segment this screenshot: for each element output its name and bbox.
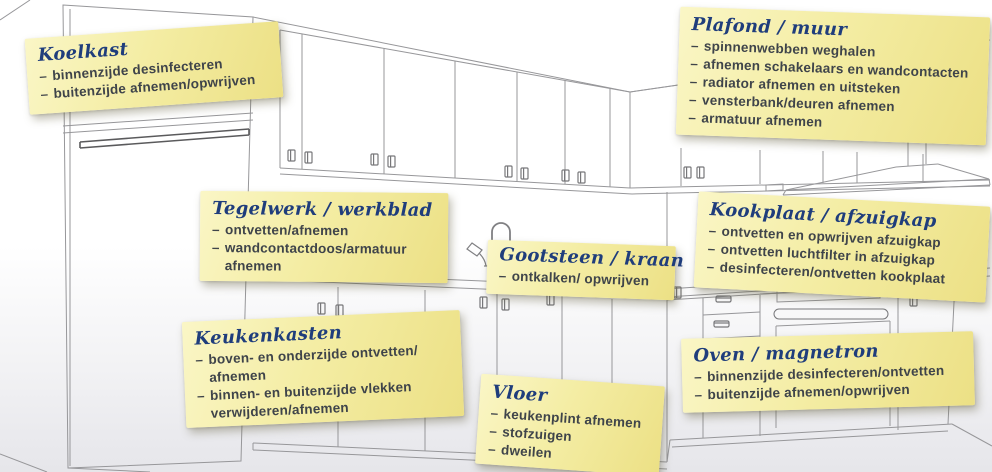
sticky-note-oven-magnetron: Oven / magnetron–binnenzijde desinfecter… bbox=[681, 331, 975, 413]
note-item: –wandcontactdoos/armatuur afnemen bbox=[212, 239, 436, 277]
list-dash: – bbox=[39, 67, 53, 86]
sticky-note-koelkast: Koelkast–binnenzijde desinfecteren–buite… bbox=[25, 21, 284, 115]
list-dash: – bbox=[487, 440, 501, 459]
list-dash: – bbox=[498, 267, 512, 285]
sticky-note-vloer: Vloer–keukenplint afnemen–stofzuigen–dwe… bbox=[475, 374, 665, 472]
list-dash: – bbox=[490, 404, 504, 423]
list-dash: – bbox=[690, 55, 704, 73]
sticky-notes-layer: Koelkast–binnenzijde desinfecteren–buite… bbox=[0, 0, 992, 472]
note-title: Tegelwerk / werkblad bbox=[212, 197, 436, 223]
sticky-note-kookplaat-afzuigkap: Kookplaat / afzuigkap–ontvetten en opwri… bbox=[694, 191, 991, 302]
list-dash: – bbox=[694, 386, 707, 404]
list-dash: – bbox=[707, 240, 721, 259]
sticky-note-keukenkasten: Keukenkasten–boven- en onderzijde ontvet… bbox=[182, 310, 464, 428]
list-dash: – bbox=[694, 368, 707, 386]
list-dash: – bbox=[212, 221, 225, 239]
sticky-note-plafond-muur: Plafond / muur–spinnenwebben weghalen–af… bbox=[676, 7, 990, 146]
list-dash: – bbox=[212, 239, 225, 257]
list-dash: – bbox=[489, 422, 503, 441]
list-dash: – bbox=[706, 258, 720, 277]
sticky-note-tegelwerk-werkblad: Tegelwerk / werkblad–ontvetten/afnemen–w… bbox=[200, 191, 449, 283]
list-dash: – bbox=[688, 109, 702, 127]
note-item: –ontvetten/afnemen bbox=[212, 221, 436, 241]
list-dash: – bbox=[195, 351, 209, 370]
list-dash: – bbox=[40, 85, 54, 104]
list-dash: – bbox=[689, 91, 703, 109]
note-item-text: wandcontactdoos/armatuur afnemen bbox=[225, 239, 436, 277]
list-dash: – bbox=[689, 73, 703, 91]
kitchen-cleaning-infographic: Koelkast–binnenzijde desinfecteren–buite… bbox=[0, 0, 992, 472]
list-dash: – bbox=[708, 222, 722, 241]
list-dash: – bbox=[197, 387, 211, 406]
sticky-note-gootsteen-kraan: Gootsteen / kraan–ontkalken/ opwrijven bbox=[486, 240, 676, 301]
list-dash: – bbox=[691, 37, 705, 55]
note-item-text: ontvetten/afnemen bbox=[225, 221, 436, 241]
note-item-text: ontkalken/ opwrijven bbox=[511, 268, 663, 291]
